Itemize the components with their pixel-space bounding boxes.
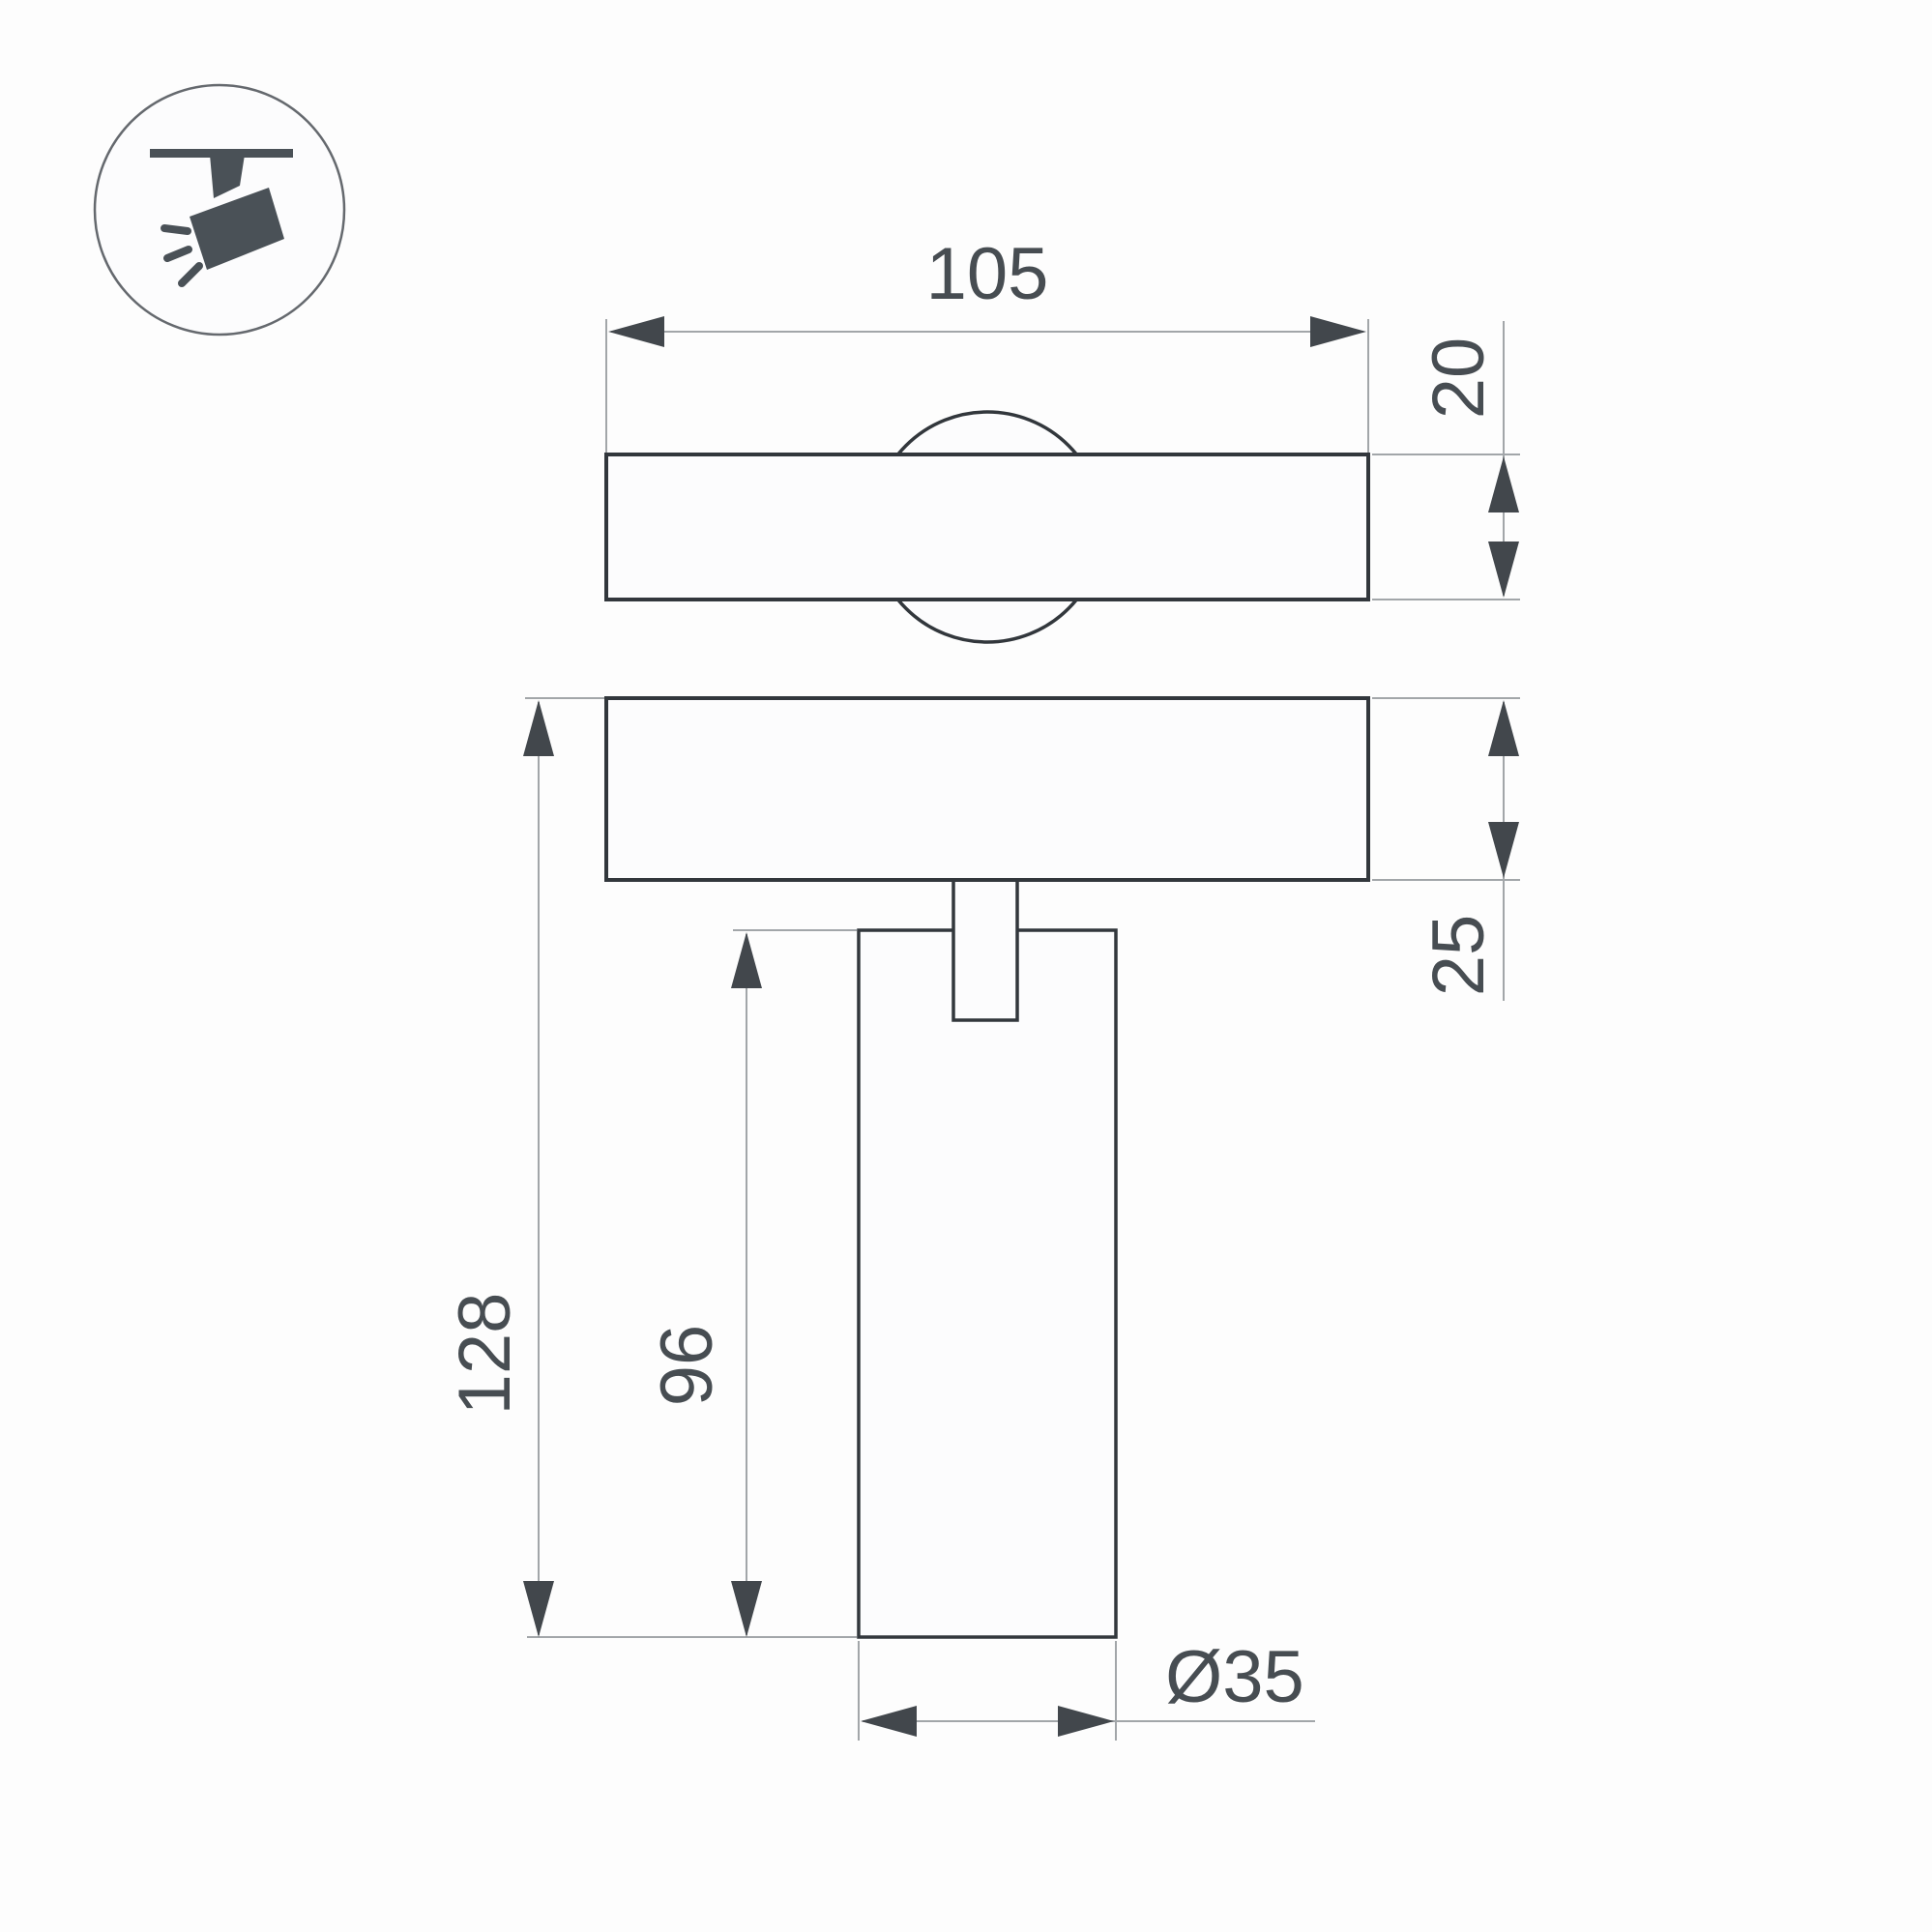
dimension-label-body-height: 96 (646, 1325, 728, 1407)
arrowhead-left (608, 316, 664, 347)
arrowhead-down (1488, 822, 1519, 878)
dimension-label-body-diameter: Ø35 (1165, 1636, 1304, 1718)
front-view-stem (953, 880, 1017, 1020)
track-light-icon (95, 85, 344, 335)
front-view-track-plate (606, 698, 1368, 880)
arrowhead-down (1488, 542, 1519, 598)
arrowhead-down (523, 1581, 554, 1637)
dimension-label-overall-height: 128 (444, 1293, 526, 1416)
front-view-cylinder-body (859, 930, 1116, 1637)
dimension-label-track-profile-height: 20 (1418, 337, 1500, 420)
arrowhead-up (731, 932, 762, 988)
arrowhead-up (1488, 700, 1519, 756)
arrowhead-up (523, 700, 554, 756)
drawing-page: 105 20 25 128 96 Ø35 (0, 0, 1932, 1932)
arrowhead-left (861, 1706, 917, 1737)
arrowhead-right (1310, 316, 1366, 347)
arrowhead-down (731, 1581, 762, 1637)
arrowhead-right (1058, 1706, 1114, 1737)
object-outlines (606, 412, 1368, 1637)
arrowhead-up (1488, 456, 1519, 512)
light-ray-icon (164, 228, 188, 231)
dimension-label-top-width: 105 (926, 233, 1049, 315)
technical-drawing: 105 20 25 128 96 Ø35 (0, 0, 1932, 1932)
top-view-track-body (606, 454, 1368, 600)
dimension-label-plate-thickness: 25 (1418, 915, 1500, 997)
